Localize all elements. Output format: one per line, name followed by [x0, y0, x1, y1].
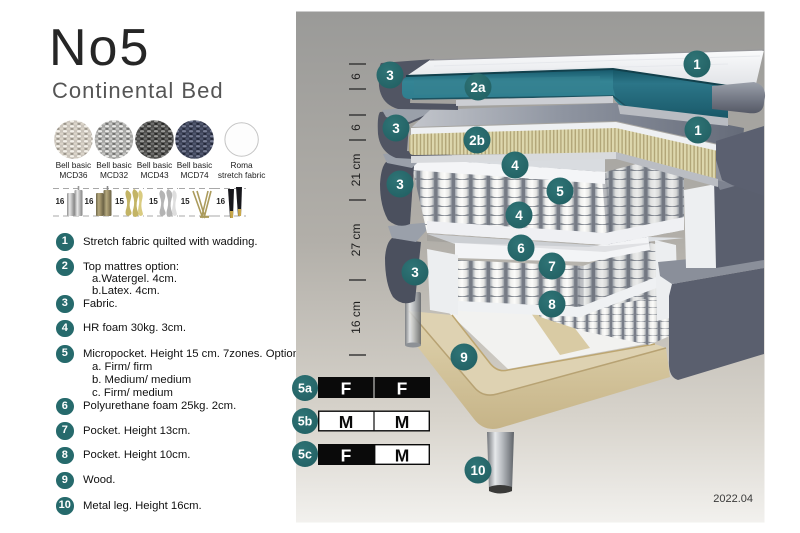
svg-text:2a: 2a — [470, 80, 486, 95]
svg-text:6: 6 — [349, 73, 363, 80]
svg-text:5a: 5a — [298, 382, 313, 396]
svg-text:6: 6 — [349, 124, 363, 131]
svg-text:6: 6 — [517, 241, 525, 256]
svg-text:5: 5 — [556, 184, 564, 199]
svg-text:5c: 5c — [298, 448, 312, 462]
svg-text:F: F — [341, 379, 352, 399]
svg-text:1: 1 — [693, 57, 701, 72]
svg-text:7: 7 — [548, 259, 556, 274]
svg-text:4: 4 — [515, 208, 523, 223]
svg-text:16 cm: 16 cm — [349, 301, 363, 334]
svg-text:2b: 2b — [469, 133, 485, 148]
svg-text:5b: 5b — [298, 415, 313, 429]
svg-text:M: M — [395, 412, 410, 432]
svg-text:M: M — [339, 412, 354, 432]
svg-text:1: 1 — [694, 123, 702, 138]
svg-text:3: 3 — [386, 68, 394, 83]
svg-text:F: F — [341, 446, 352, 466]
svg-text:3: 3 — [411, 265, 419, 280]
svg-text:3: 3 — [392, 121, 400, 136]
svg-text:21 cm: 21 cm — [349, 154, 363, 187]
svg-text:9: 9 — [460, 350, 468, 365]
svg-text:M: M — [395, 446, 410, 466]
svg-text:2022.04: 2022.04 — [713, 493, 753, 505]
svg-text:8: 8 — [548, 297, 556, 312]
svg-text:10: 10 — [470, 463, 485, 478]
svg-text:4: 4 — [511, 158, 519, 173]
svg-text:F: F — [397, 379, 408, 399]
svg-text:27 cm: 27 cm — [349, 224, 363, 257]
svg-text:3: 3 — [396, 177, 404, 192]
